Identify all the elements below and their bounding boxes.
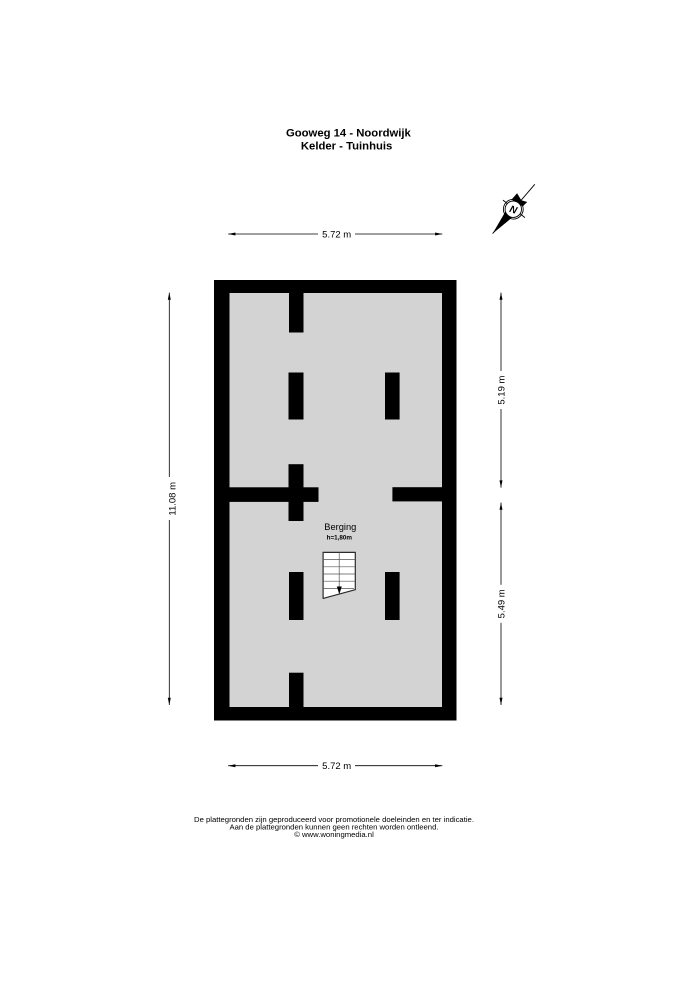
svg-text:11.08 m: 11.08 m xyxy=(167,482,178,516)
svg-text:Berging: Berging xyxy=(324,522,356,532)
svg-text:5.49 m: 5.49 m xyxy=(496,589,507,618)
svg-text:Kelder - Tuinhuis: Kelder - Tuinhuis xyxy=(301,141,392,153)
svg-text:5.72 m: 5.72 m xyxy=(322,761,351,772)
svg-text:5.19 m: 5.19 m xyxy=(496,375,507,404)
svg-text:Gooweg 14 - Noordwijk: Gooweg 14 - Noordwijk xyxy=(286,127,412,139)
svg-text:5.72 m: 5.72 m xyxy=(322,229,351,240)
svg-text:© www.woningmedia.nl: © www.woningmedia.nl xyxy=(294,830,374,839)
svg-text:h=1,80m: h=1,80m xyxy=(327,535,353,542)
